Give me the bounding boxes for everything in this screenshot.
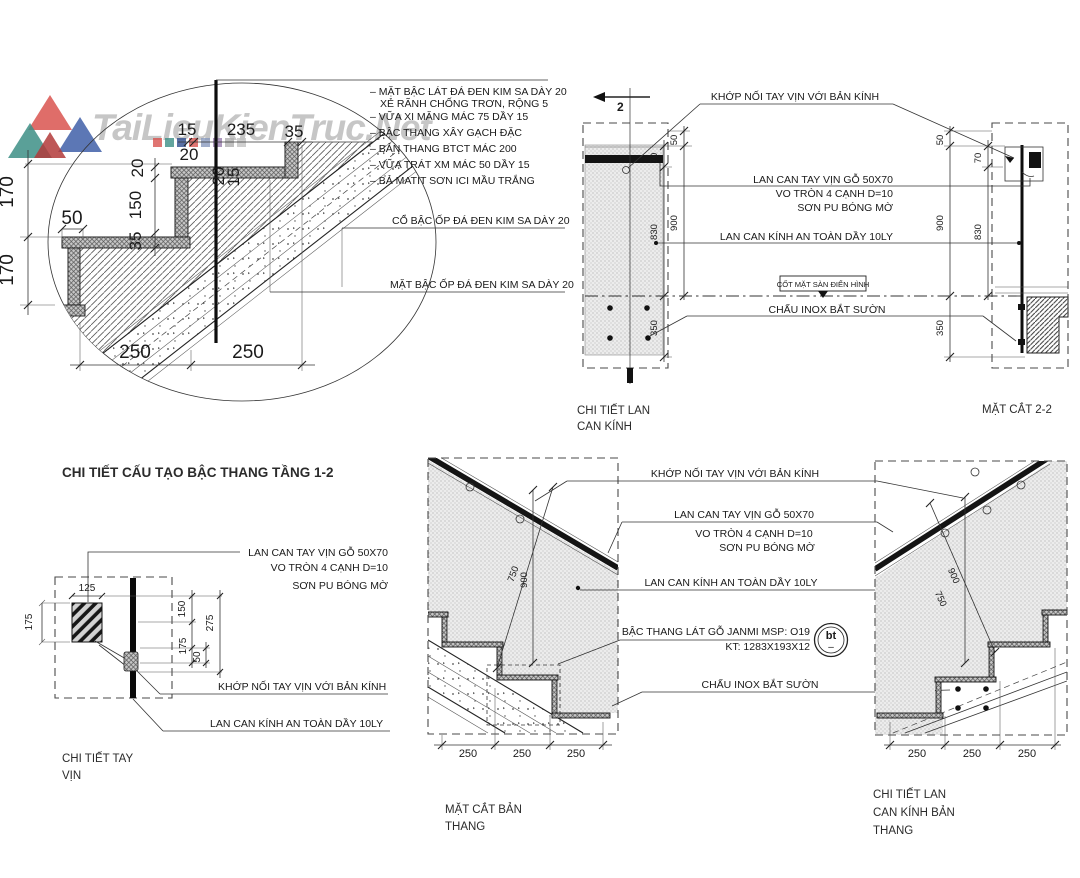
dim-830: 830 xyxy=(973,224,984,240)
title-line-3: THANG xyxy=(873,825,913,837)
detail-tay-vin: 125 175 150 175 50 275 LAN CAN TAY VỊN G… xyxy=(24,546,390,782)
tag-bt-dash: – xyxy=(828,642,834,653)
dim-830: 830 xyxy=(649,224,660,240)
dim-250-2: 250 xyxy=(513,748,531,760)
dim-15-top: 15 xyxy=(178,120,197,139)
wood-handrail-block xyxy=(72,603,102,642)
level-marker-icon xyxy=(818,291,828,298)
dim-250-2: 250 xyxy=(963,748,981,760)
leader-dot-left xyxy=(576,586,580,590)
tag-bt: bt xyxy=(826,630,837,642)
leader-khop-left xyxy=(535,481,567,501)
note-line-4: – BẬC THANG XÂY GẠCH ĐẶC xyxy=(370,126,522,139)
dim-900: 900 xyxy=(519,572,530,588)
label-chau-inox: CHẤU INOX BẮT SƯỜN xyxy=(769,303,886,316)
dim-70: 70 xyxy=(649,153,660,164)
dim-150: 150 xyxy=(177,600,188,617)
dim-50: 50 xyxy=(669,135,680,146)
label-bac-go: BẬC THANG LÁT GỖ JANMI MSP: O19 xyxy=(622,625,810,638)
ext-lines xyxy=(663,131,692,357)
label-khop-noi: KHỚP NỐI TAY VỊN VỚI BẢN KÍNH xyxy=(218,679,386,693)
label-vo-tron: VO TRÒN 4 CẠNH D=10 xyxy=(271,561,389,574)
dim-250-right: 250 xyxy=(232,342,264,363)
label-mat-bac: MẶT BẬC ỐP ĐÁ ĐEN KIM SA DÀY 20 xyxy=(390,277,574,291)
dim-250-1: 250 xyxy=(459,748,477,760)
leader-khop-noi xyxy=(137,671,160,694)
label-son-pu: SƠN PU BÓNG MỜ xyxy=(719,541,815,554)
inox-clip-dots xyxy=(955,686,989,711)
dim-250-1: 250 xyxy=(908,748,926,760)
leader-dot-right xyxy=(1017,241,1021,245)
leader-dot-left xyxy=(654,241,658,245)
detail-lan-can-kinh: 2 70 830 350 50 900 CHI TIẾT LAN CAN KÍN… xyxy=(577,88,700,433)
dim-175-right: 175 xyxy=(178,637,189,654)
section-marker-number: 2 xyxy=(617,100,624,114)
dim-250-left: 250 xyxy=(119,342,151,363)
leader-tay-vin-right xyxy=(877,522,893,532)
detail-mat-cat-ban-thang: 750 900 250 250 250 MẶT CẮT BẢN THANG xyxy=(428,450,618,833)
drawing-canvas: TaiLieuKienTruc.Net xyxy=(0,0,1080,878)
floor-slab-hatch xyxy=(1027,297,1068,353)
label-kinh: LAN CAN KÍNH AN TOÀN DẦY 10LY xyxy=(644,576,817,589)
dim-275: 275 xyxy=(205,614,216,631)
dim-50: 50 xyxy=(935,135,946,146)
dim-50: 50 xyxy=(61,208,82,229)
dim-15-nose: 15 xyxy=(224,168,243,187)
glass-panel-fill xyxy=(875,461,1067,713)
main-title: CHI TIẾT CẤU TẠO BẬC THANG TẦNG 1-2 xyxy=(62,465,334,480)
dim-35-stack: 35 xyxy=(126,232,145,251)
glass-end-bar xyxy=(627,368,633,383)
detail-mat-cat-22: 50 900 350 70 830 MẶT CẮT 2-2 xyxy=(893,104,1068,416)
dim-900: 900 xyxy=(935,215,946,231)
dim-250-3: 250 xyxy=(1018,748,1036,760)
dim-900: 900 xyxy=(669,215,680,231)
floor-finish-lines xyxy=(995,287,1068,293)
ticks xyxy=(946,127,992,361)
title-line-1: CHI TIẾT TAY xyxy=(62,752,133,765)
dim-235-top: 235 xyxy=(227,120,255,139)
label-vo-tron: VO TRÒN 4 CẠNH D=10 xyxy=(695,527,813,540)
handrail-section xyxy=(1029,152,1041,168)
detail-lan-can-ban-thang: 900 750 250 250 250 CHI TIẾT LAN CAN KÍN… xyxy=(873,448,1067,837)
note-line-3: – VỮA XI MĂNG MÁC 75 DẦY 15 xyxy=(370,110,528,123)
dim-170-lower: 170 xyxy=(0,254,18,286)
label-son-pu: SƠN PU BÓNG MỜ xyxy=(292,579,388,592)
title-line-2: VỊN xyxy=(62,770,81,782)
label-chau-inox: CHẤU INOX BẮT SƯỜN xyxy=(702,678,819,691)
leader-chau-right xyxy=(983,316,1016,341)
label-kinh: LAN CAN KÍNH AN TOÀN DẦY 10LY xyxy=(210,717,383,730)
title-line-1: CHI TIẾT LAN xyxy=(873,788,946,801)
note-line-1: – MẶT BẬC LÁT ĐÁ ĐEN KIM SA DÀY 20 xyxy=(370,85,567,98)
label-kt: KT: 1283X193X12 xyxy=(725,641,810,653)
clamp-fitting xyxy=(124,652,138,671)
note-line-2: XẺ RÃNH CHỐNG TRƠN, RỘNG 5 xyxy=(380,96,548,110)
label-khop-noi: KHỚP NỐI TAY VỊN VỚI BẢN KÍNH xyxy=(711,89,879,103)
inox-clip-top xyxy=(1018,304,1025,310)
dim-250-3: 250 xyxy=(567,748,585,760)
dim-170-upper: 170 xyxy=(0,176,18,208)
dim-125: 125 xyxy=(79,583,96,594)
inox-clip-bottom xyxy=(1018,339,1025,345)
note-line-6: – VỮA TRÁT XM MÁC 50 DẦY 15 xyxy=(370,158,530,171)
title-mat-cat-22: MẶT CẮT 2-2 xyxy=(982,403,1052,416)
ext-lines xyxy=(944,131,1025,357)
section-arrow-icon xyxy=(593,92,605,102)
dim-175-left: 175 xyxy=(24,613,35,630)
leader-tay-vin-left xyxy=(608,522,622,553)
label-son-pu: SƠN PU BÓNG MỜ xyxy=(797,201,893,214)
title-line-2: CAN KÍNH xyxy=(577,420,632,433)
label-tay-vin: LAN CAN TAY VỊN GỖ 50X70 xyxy=(674,508,814,521)
label-co-bac: CỔ BẬC ỐP ĐÁ ĐEN KIM SA DÀY 20 xyxy=(392,213,570,227)
ext-right xyxy=(104,596,222,672)
label-vo-tron: VO TRÒN 4 CẠNH D=10 xyxy=(776,187,894,200)
dim-35-top: 35 xyxy=(285,122,304,141)
label-khop-noi: KHỚP NỐI TAY VỊN VỚI BẢN KÍNH xyxy=(651,466,819,480)
leader-kinh xyxy=(133,699,163,731)
note-line-7: – BẢ MATIT SƠN ICI MẦU TRẮNG xyxy=(370,174,535,187)
connector-hook xyxy=(1022,172,1034,177)
label-cot-san: CỐT MẶT SÀN ĐIỂN HÌNH xyxy=(777,279,870,289)
dim-20-stack: 20 xyxy=(128,159,147,178)
label-tay-vin: LAN CAN TAY VỊN GỖ 50X70 xyxy=(753,173,893,186)
dim-50: 50 xyxy=(192,651,203,663)
connector-arm xyxy=(95,641,126,666)
dim-350: 350 xyxy=(935,320,946,336)
dim-20-top: 20 xyxy=(180,145,199,164)
note-line-5: – BẢN THANG BTCT MÁC 200 xyxy=(370,142,517,155)
dim-70: 70 xyxy=(973,153,984,164)
leader-khop-right xyxy=(877,481,963,498)
dim-150-stack: 150 xyxy=(126,191,145,219)
title-line-2: CAN KÍNH BẢN xyxy=(873,806,955,819)
title-line-1: CHI TIẾT LAN xyxy=(577,404,650,417)
label-kinh: LAN CAN KÍNH AN TOÀN DẦY 10LY xyxy=(720,230,893,243)
title-line-1: MẶT CẮT BẢN xyxy=(445,803,522,816)
label-tay-vin: LAN CAN TAY VỊN GỖ 50X70 xyxy=(248,546,388,559)
watermark-triangle-red xyxy=(28,95,72,130)
title-line-2: THANG xyxy=(445,821,485,833)
